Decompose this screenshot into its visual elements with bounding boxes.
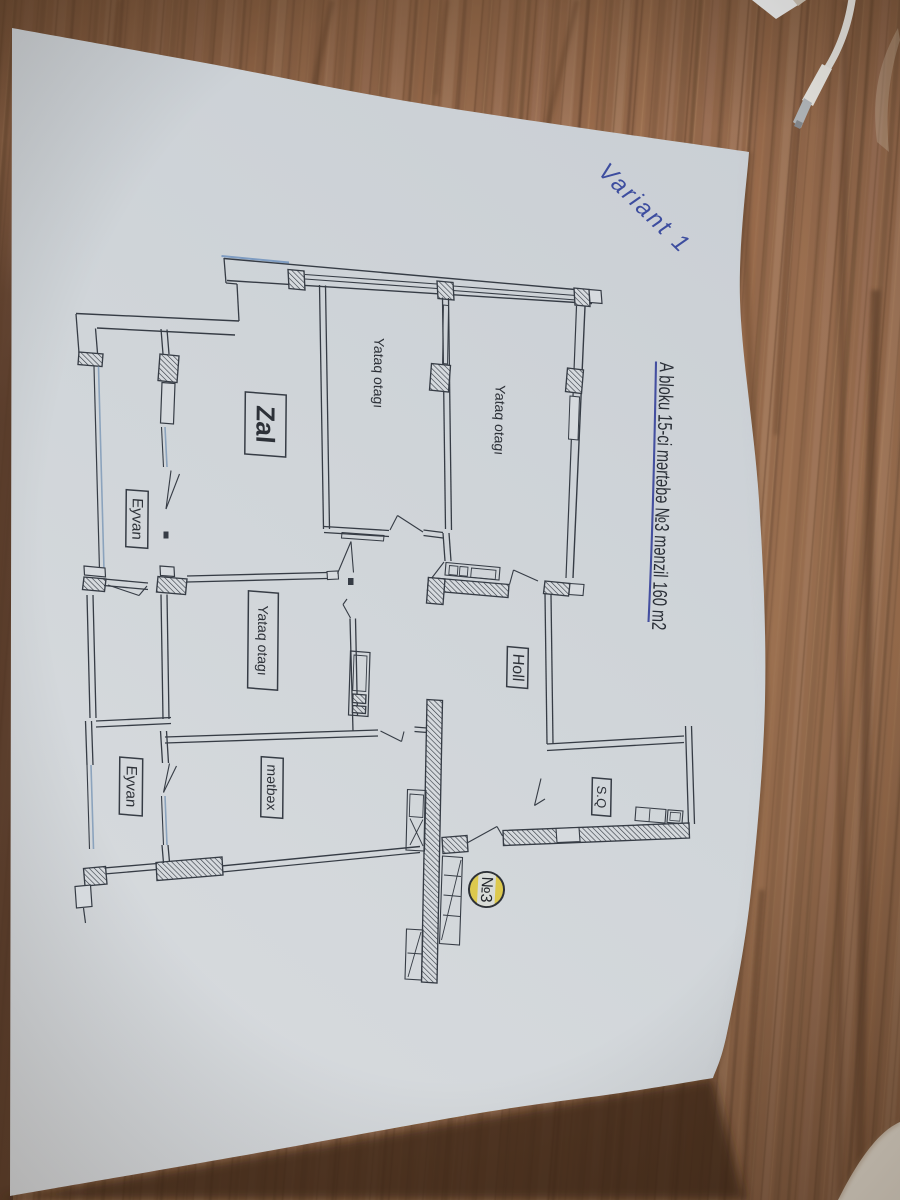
svg-text:Eyvan: Eyvan (122, 765, 139, 808)
svg-text:Zal: Zal (250, 405, 280, 445)
svg-text:Yataq otagı: Yataq otagı (255, 605, 272, 677)
svg-text:mətbəx: mətbəx (264, 764, 280, 811)
svg-text:Yataq otagı: Yataq otagı (491, 384, 508, 456)
svg-text:№3: №3 (477, 876, 495, 903)
svg-text:Yataq otagı: Yataq otagı (371, 337, 388, 409)
svg-text:Eyvan: Eyvan (128, 497, 145, 540)
svg-text:S.Q: S.Q (594, 785, 609, 809)
svg-text:Holl: Holl (509, 653, 526, 682)
